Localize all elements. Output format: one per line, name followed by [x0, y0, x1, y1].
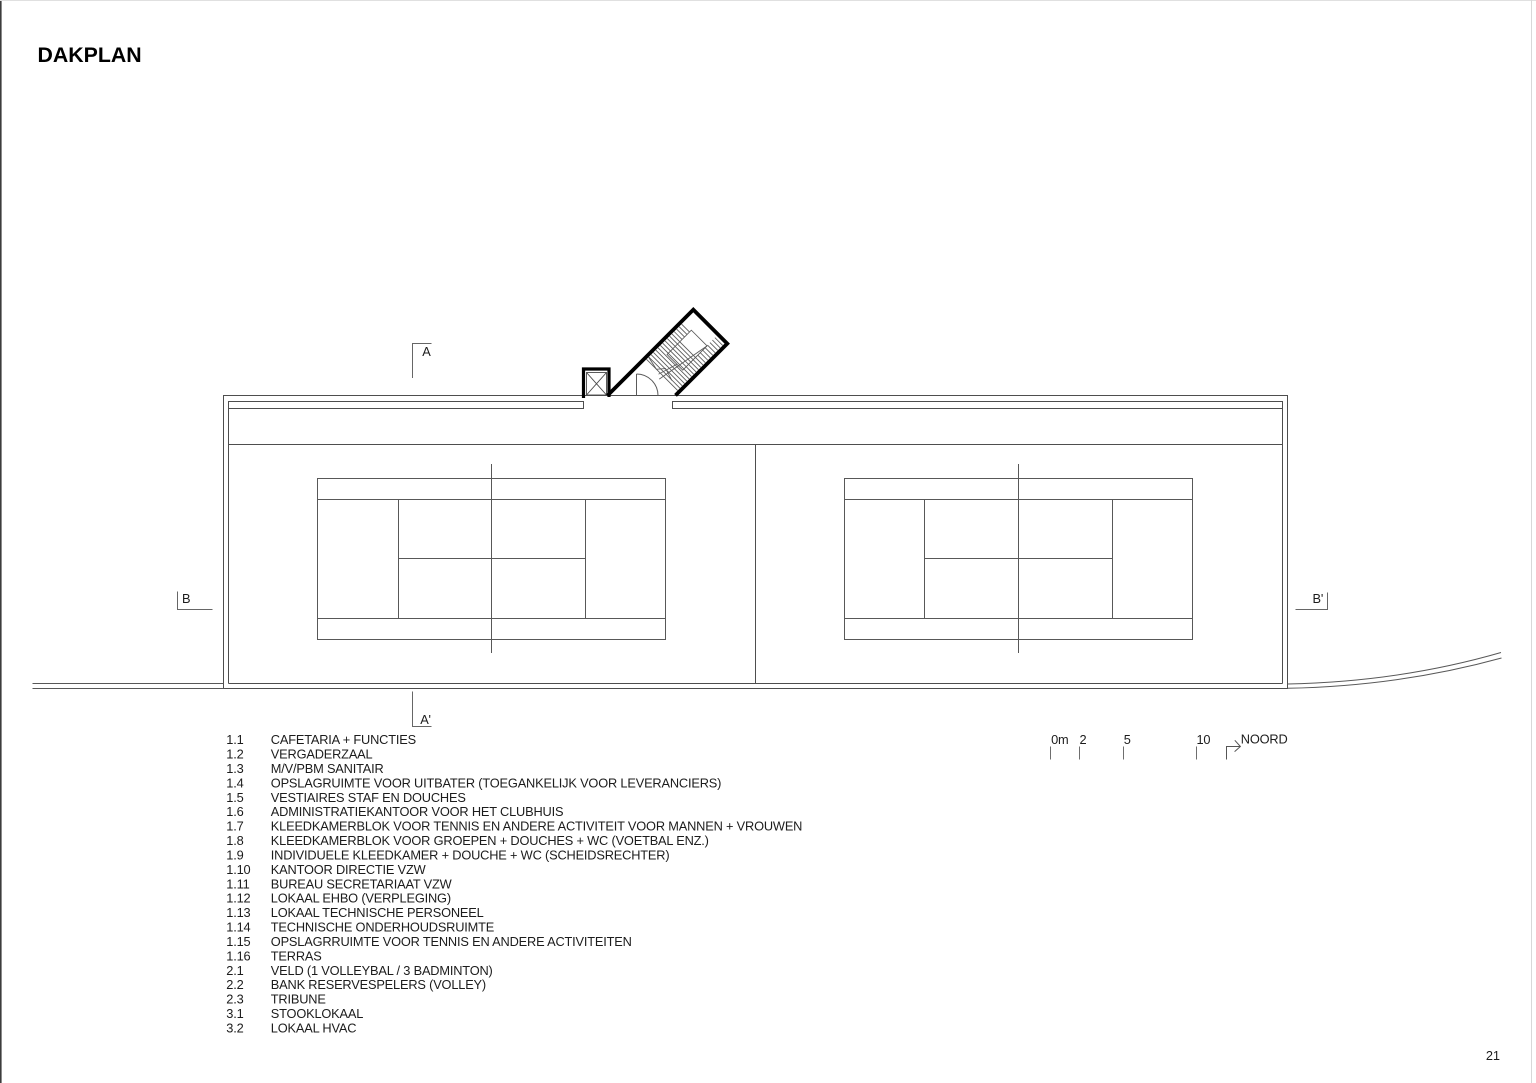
svg-text:VERGADERZAAL: VERGADERZAAL	[271, 747, 373, 762]
svg-text:1.1: 1.1	[226, 732, 243, 747]
svg-text:CAFETARIA + FUNCTIES: CAFETARIA + FUNCTIES	[271, 732, 416, 747]
svg-text:2: 2	[1080, 732, 1087, 747]
svg-text:TRIBUNE: TRIBUNE	[271, 992, 326, 1007]
svg-text:B: B	[182, 591, 190, 606]
svg-text:1.6: 1.6	[226, 804, 243, 819]
svg-text:TECHNISCHE ONDERHOUDSRUIMTE: TECHNISCHE ONDERHOUDSRUIMTE	[271, 920, 494, 935]
svg-text:DAKPLAN: DAKPLAN	[38, 43, 142, 67]
svg-text:1.11: 1.11	[226, 876, 249, 891]
svg-text:1.12: 1.12	[226, 891, 250, 906]
svg-text:OPSLAGRRUIMTE VOOR TENNIS EN A: OPSLAGRRUIMTE VOOR TENNIS EN ANDERE ACTI…	[271, 934, 632, 949]
svg-text:A': A'	[420, 712, 431, 727]
svg-text:BANK RESERVESPELERS (VOLLEY): BANK RESERVESPELERS (VOLLEY)	[271, 977, 486, 992]
svg-text:KLEEDKAMERBLOK VOOR TENNIS EN: KLEEDKAMERBLOK VOOR TENNIS EN ANDERE ACT…	[271, 819, 802, 834]
svg-text:3.2: 3.2	[226, 1021, 243, 1036]
svg-text:STOOKLOKAAL: STOOKLOKAAL	[271, 1006, 363, 1021]
svg-text:21: 21	[1486, 1048, 1500, 1063]
svg-text:10: 10	[1197, 732, 1211, 747]
svg-text:1.2: 1.2	[226, 747, 243, 762]
svg-text:3.1: 3.1	[226, 1006, 243, 1021]
svg-text:BUREAU SECRETARIAAT VZW: BUREAU SECRETARIAAT VZW	[271, 876, 453, 891]
svg-text:VELD (1 VOLLEYBAL / 3 BADMINTO: VELD (1 VOLLEYBAL / 3 BADMINTON)	[271, 963, 493, 978]
svg-text:1.10: 1.10	[226, 862, 250, 877]
svg-text:5: 5	[1124, 732, 1131, 747]
svg-text:A: A	[422, 344, 431, 359]
svg-text:LOKAAL EHBO (VERPLEGING): LOKAAL EHBO (VERPLEGING)	[271, 891, 451, 906]
svg-text:ADMINISTRATIEKANTOOR VOOR HET: ADMINISTRATIEKANTOOR VOOR HET CLUBHUIS	[271, 804, 564, 819]
svg-text:VESTIAIRES STAF EN DOUCHES: VESTIAIRES STAF EN DOUCHES	[271, 790, 466, 805]
svg-text:0m: 0m	[1051, 732, 1068, 747]
svg-text:OPSLAGRUIMTE VOOR UITBATER (TO: OPSLAGRUIMTE VOOR UITBATER (TOEGANKELIJK…	[271, 775, 721, 790]
svg-text:TERRAS: TERRAS	[271, 948, 322, 963]
svg-text:1.3: 1.3	[226, 761, 243, 776]
svg-text:1.7: 1.7	[226, 819, 243, 834]
svg-text:M/V/PBM SANITAIR: M/V/PBM SANITAIR	[271, 761, 384, 776]
svg-text:2.3: 2.3	[226, 992, 243, 1007]
svg-text:INDIVIDUELE KLEEDKAMER + DOUCH: INDIVIDUELE KLEEDKAMER + DOUCHE + WC (SC…	[271, 848, 670, 863]
svg-text:1.13: 1.13	[226, 905, 250, 920]
svg-text:1.4: 1.4	[226, 775, 243, 790]
svg-text:1.16: 1.16	[226, 948, 250, 963]
svg-text:1.9: 1.9	[226, 848, 243, 863]
svg-text:KLEEDKAMERBLOK VOOR GROEPEN +: KLEEDKAMERBLOK VOOR GROEPEN + DOUCHES + …	[271, 833, 709, 848]
svg-text:2.2: 2.2	[226, 977, 243, 992]
svg-text:LOKAAL TECHNISCHE PERSONEEL: LOKAAL TECHNISCHE PERSONEEL	[271, 905, 484, 920]
svg-text:KANTOOR DIRECTIE VZW: KANTOOR DIRECTIE VZW	[271, 862, 427, 877]
svg-text:1.8: 1.8	[226, 833, 243, 848]
svg-text:B': B'	[1313, 591, 1324, 606]
svg-text:1.14: 1.14	[226, 920, 250, 935]
svg-text:NOORD: NOORD	[1241, 731, 1288, 746]
svg-text:1.15: 1.15	[226, 934, 250, 949]
svg-text:2.1: 2.1	[226, 963, 243, 978]
svg-text:1.5: 1.5	[226, 790, 243, 805]
svg-text:LOKAAL HVAC: LOKAAL HVAC	[271, 1021, 357, 1036]
